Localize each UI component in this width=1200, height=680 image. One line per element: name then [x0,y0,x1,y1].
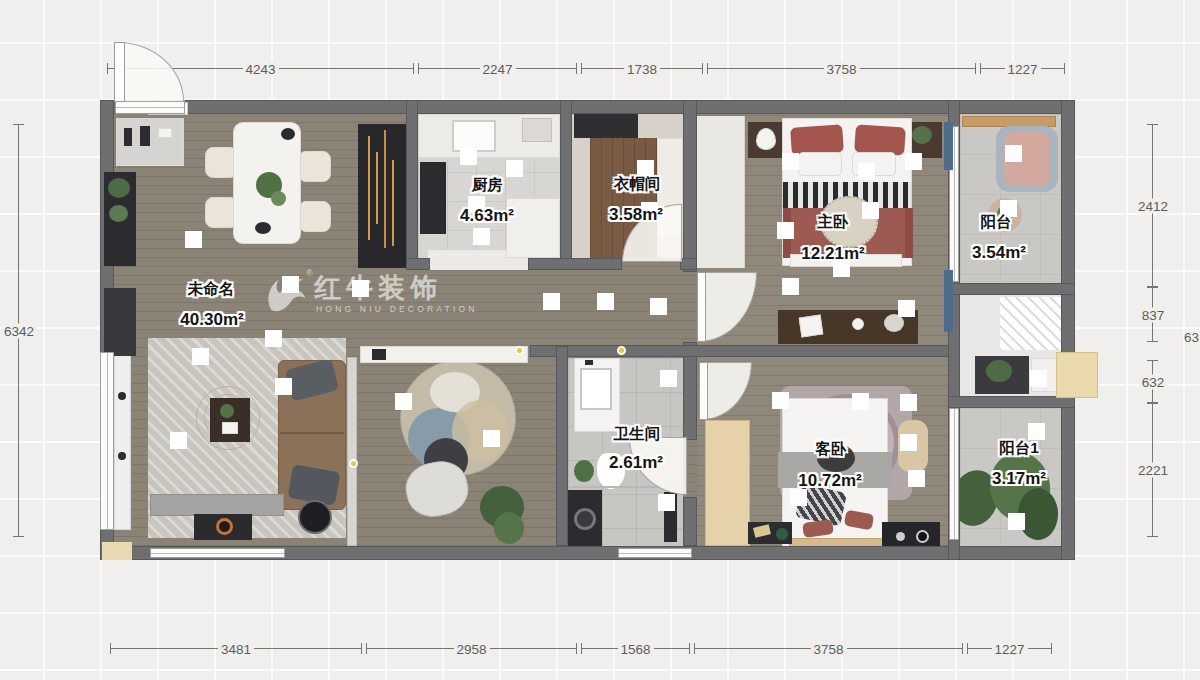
room-area-closet[interactable]: 3.58m² [609,205,663,225]
closet-cabinet-top [574,114,638,138]
registered-mark: ® [306,268,313,278]
point-marker-yellow [349,459,358,468]
dim-bottom-3: 1568 [581,648,690,649]
marker-square [900,394,917,411]
bath-sink [580,368,612,410]
speaker [298,500,332,534]
marker-square [1008,513,1025,530]
marker-square [170,432,187,449]
marker-square [460,148,477,165]
dim-right-2: 837 [1152,287,1153,342]
marker-square [185,231,202,248]
master-door-leaf[interactable] [697,272,706,342]
marker-square [275,378,292,395]
dining-bowl [255,222,271,234]
watermark-subtitle: HONG NIU DECORATION [316,304,478,314]
wall-master-bottom [530,345,960,357]
marker-square [790,489,807,506]
room-label-balcony[interactable]: 阳台 [981,212,1012,233]
room-area-master[interactable]: 12.21m² [801,244,864,264]
dining-chair [298,151,331,182]
dresser-books [799,315,824,338]
dim-bottom-4: 3758 [694,648,963,649]
room-area-living[interactable]: 40.30m² [180,310,243,330]
coffee-table-plant [220,404,234,418]
kitchen-island [506,198,560,258]
room-label-balcony1[interactable]: 阳台1 [999,438,1039,459]
hongniu-bull-logo-icon [262,272,308,318]
wall-under-kitchen-b [528,258,622,270]
dim-right-1: 2412 [1152,124,1153,287]
guest-balcony-slider[interactable] [949,408,959,540]
room-area-balcony[interactable]: 3.54m² [972,243,1026,263]
washer-door [574,508,596,530]
dining-bowl [281,128,295,140]
marker-square [908,470,925,487]
marker-square [898,300,915,317]
study-plant [494,512,524,544]
kitchen-appliance [522,118,552,142]
marker-square [782,153,799,170]
dim-bottom-1: 3481 [110,648,362,649]
shelf-item [118,452,126,460]
entrance-door-leaf[interactable] [114,42,125,102]
curtain-blue [944,122,953,170]
marker-square [506,160,523,177]
floorplan-canvas: 4243 2247 1738 3758 1227 3481 2958 1568 … [0,0,1200,680]
watermark: ® 红牛装饰 HONG NIU DECORATION [262,270,482,328]
dim-bottom-2: 2958 [366,648,577,649]
corner-block [102,542,132,560]
room-area-bathroom[interactable]: 2.61m² [609,453,663,473]
room-area-kitchen[interactable]: 4.63m² [460,206,514,226]
master-pillow [854,124,906,155]
entry-sill [115,100,185,114]
guest-wardrobe [705,420,750,546]
niche-window [1000,297,1061,350]
dresser-trinket [852,318,864,330]
dim-bottom-5: 1227 [967,648,1052,649]
window-living-left [100,352,114,530]
fireplace-ring [216,518,233,535]
window-seat-shelf [114,352,131,530]
wall-right [1061,100,1075,560]
bath-plant [574,460,594,482]
room-label-bathroom[interactable]: 卫生间 [614,424,661,445]
master-wardrobe-hall [697,116,745,268]
marker-square [395,393,412,410]
dining-plant [271,191,286,206]
marker-square [650,298,667,315]
wall-balcony-mid-a [948,283,1075,295]
marker-square [905,153,922,170]
master-pillow-front [798,152,842,176]
entrance-door-arc[interactable] [118,42,184,102]
marker-square [862,202,879,219]
room-area-guest[interactable]: 10.72m² [798,471,861,491]
console-knob [916,530,929,543]
marker-square [265,330,282,347]
dim-top-2: 2247 [418,68,577,69]
tv-console [150,494,284,516]
room-label-closet[interactable]: 衣帽间 [614,174,661,195]
marker-square [772,392,789,409]
marker-square [858,163,875,180]
wall-under-kitchen-a [406,258,430,270]
tv-wall-accent [376,152,378,224]
plant [108,178,130,198]
dim-right-partial: 63 [1184,330,1199,345]
ac-unit [1056,352,1098,398]
dim-left-1: 6342 [18,124,19,537]
watermark-brand: 红牛装饰 [314,270,442,306]
marker-square [473,228,490,245]
dim-right-3: 632 [1152,360,1153,403]
room-label-guest[interactable]: 客卧 [816,439,847,460]
wall-kitchen-left [406,100,418,270]
wall-top [100,100,1075,114]
marker-square [658,494,675,511]
curtain-blue [944,270,953,332]
marker-square [782,278,799,295]
plant [109,205,128,222]
dim-top-5: 1227 [980,68,1065,69]
bath-faucet [585,360,593,365]
wall-closet-master [683,100,697,272]
tv-wall-accent [392,160,394,246]
marker-square [543,293,560,310]
tv-wall-accent [368,136,370,240]
room-label-master[interactable]: 主卧 [818,212,849,233]
marker-square [597,293,614,310]
tv-feature-wall [358,124,406,268]
marker-square [660,370,677,387]
marker-square [852,393,869,410]
room-area-balcony1[interactable]: 3.17m² [992,469,1046,489]
desk-frames [372,349,386,360]
guest-door-leaf[interactable] [699,362,708,420]
window-living-bottom [150,548,285,558]
tv-wall-accent [384,130,386,248]
room-label-kitchen[interactable]: 厨房 [472,175,503,196]
entry-counter-item [158,128,172,138]
entry-counter-item [124,128,132,146]
dim-top-3: 1738 [581,68,703,69]
marker-square [1030,370,1047,387]
dim-top-4: 3758 [707,68,976,69]
niche-plant [986,360,1012,382]
dining-chair [298,201,331,232]
point-marker-yellow [617,346,626,355]
window-bath-bottom [618,548,692,558]
marker-square [1005,145,1022,162]
marker-square [192,348,209,365]
wall-bath-left [556,346,568,546]
wall-under-closet [680,258,697,270]
guest-desk-plant [776,528,788,540]
marker-square [900,434,917,451]
entry-counter-item [140,126,150,146]
sofa-seam [280,432,344,434]
marker-square [777,222,794,239]
nightstand-tray [756,128,776,150]
point-marker-yellow [515,346,524,355]
left-display-cabinet [104,288,136,356]
room-label-living[interactable]: 未命名 [188,279,235,300]
marker-square [483,430,500,447]
coffee-table-tray [222,422,238,434]
shelf-item [118,392,126,400]
dim-right-4: 2221 [1152,403,1153,537]
wall-kitchen-closet [560,100,572,268]
kitchen-stove [420,162,446,234]
study-partition [347,357,357,546]
wall-bath-guest-lower [683,497,697,546]
console-knob [896,532,905,541]
nightstand-plant [912,126,932,144]
